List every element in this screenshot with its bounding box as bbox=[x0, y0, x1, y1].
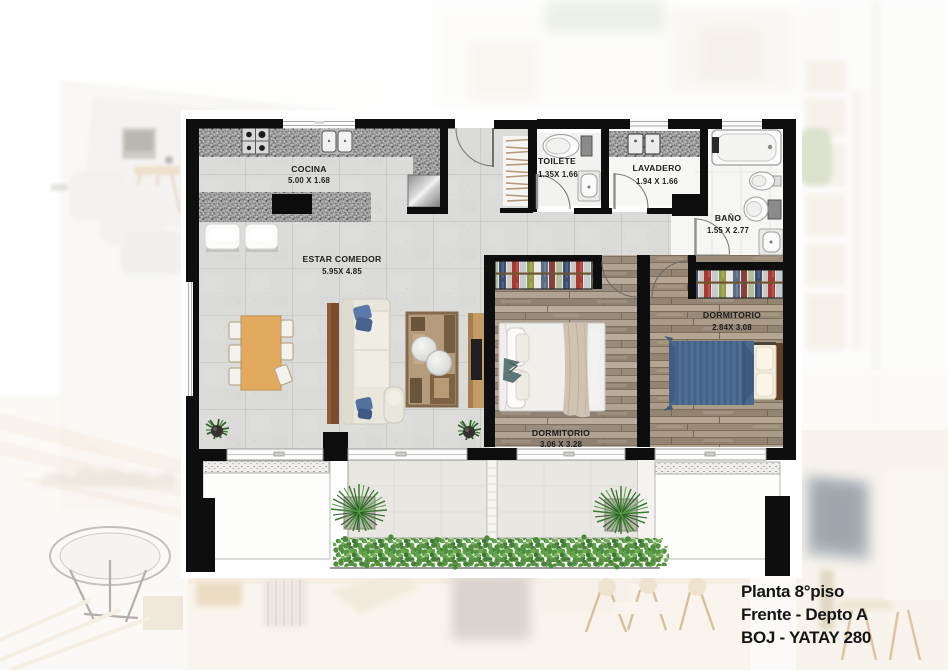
svg-text:5.95X 4.85: 5.95X 4.85 bbox=[322, 267, 362, 276]
svg-text:ESTAR COMEDOR: ESTAR COMEDOR bbox=[302, 254, 382, 264]
svg-text:BOJ - YATAY 280: BOJ - YATAY 280 bbox=[741, 628, 871, 647]
svg-text:5.00 X 1.68: 5.00 X 1.68 bbox=[288, 176, 331, 185]
svg-text:LAVADERO: LAVADERO bbox=[633, 163, 682, 173]
svg-text:Frente - Depto A: Frente - Depto A bbox=[741, 605, 868, 624]
svg-text:TOILETE: TOILETE bbox=[538, 156, 576, 166]
svg-text:DORMITORIO: DORMITORIO bbox=[703, 310, 761, 320]
svg-text:Planta 8°piso: Planta 8°piso bbox=[741, 582, 844, 601]
svg-text:COCINA: COCINA bbox=[291, 164, 326, 174]
svg-text:1.55 X 2.77: 1.55 X 2.77 bbox=[707, 226, 749, 235]
svg-text:DORMITORIO: DORMITORIO bbox=[532, 428, 590, 438]
svg-text:BAÑO: BAÑO bbox=[715, 213, 741, 223]
svg-text:1.94 X 1.66: 1.94 X 1.66 bbox=[636, 177, 679, 186]
svg-text:2.84X 3.08: 2.84X 3.08 bbox=[712, 323, 752, 332]
svg-text:3.06 X 3.28: 3.06 X 3.28 bbox=[540, 440, 583, 449]
svg-text:1.35X 1.66: 1.35X 1.66 bbox=[538, 170, 578, 179]
